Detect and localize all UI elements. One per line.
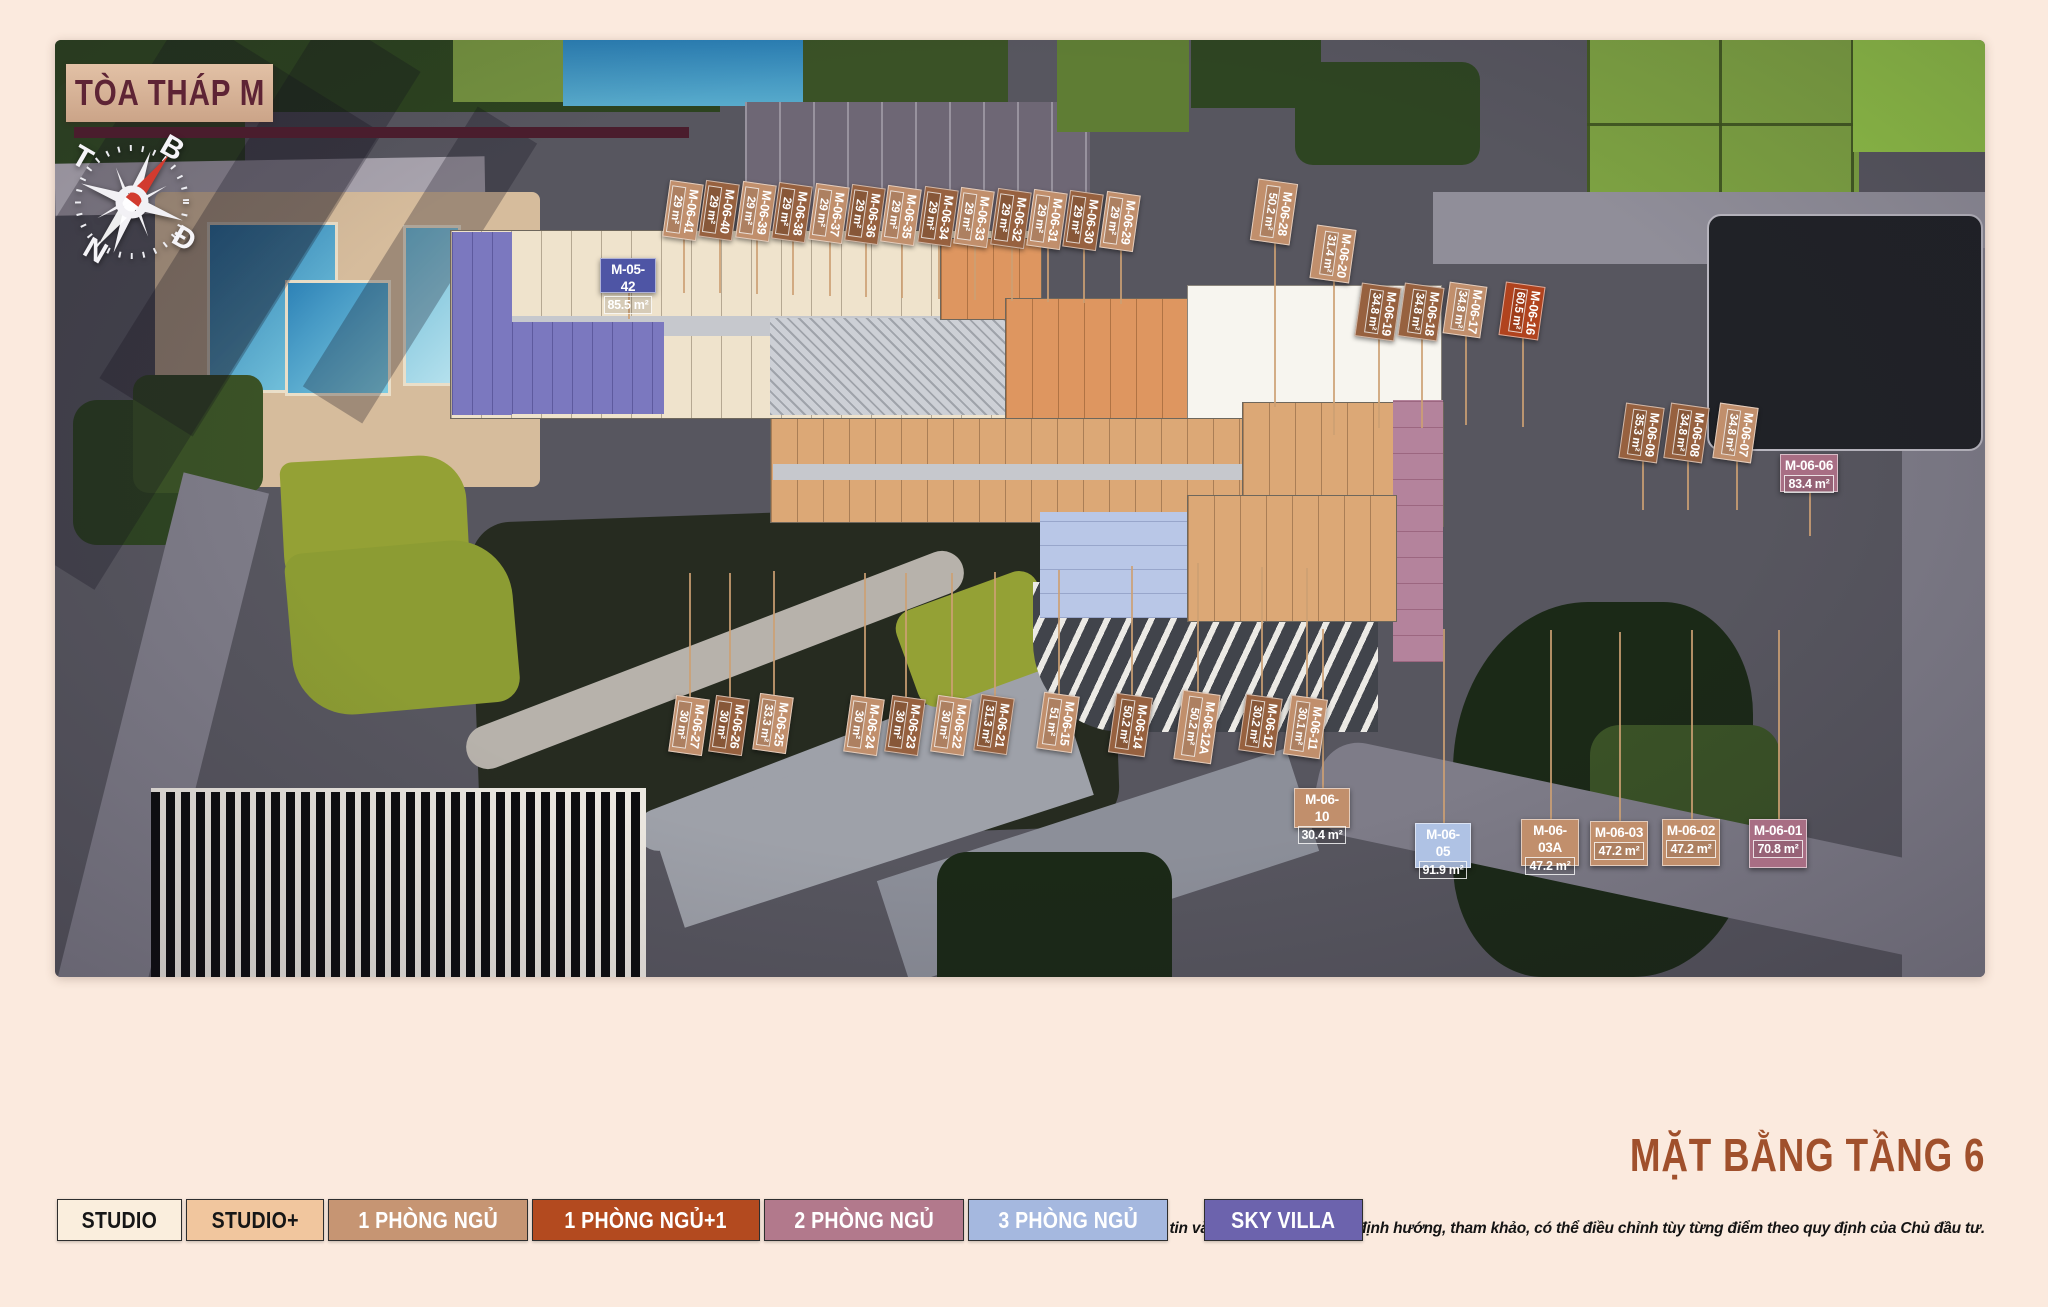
unit-lead-line [1619,632,1621,827]
unit-lead-line [864,573,866,703]
unit-area: 85.5 m² [604,296,652,314]
unit-label-M-06-20: M-06-2031.4 m² [1309,224,1356,283]
compass-rose: B Đ N T [55,112,215,282]
unit-lead-line [905,573,907,703]
unit-area: 47.2 m² [1594,842,1644,860]
unit-area: 70.8 m² [1753,840,1803,858]
legend-item-4: 1 PHÒNG NGỦ+1 [532,1199,759,1241]
site-photo: M-06-4129 m²M-06-4029 m²M-06-3929 m²M-06… [55,40,1985,977]
poster: M-06-4129 m²M-06-4029 m²M-06-3929 m²M-06… [0,0,2048,1307]
unit-lead-line [1809,486,1811,536]
unit-code: M-06-06 [1784,457,1834,474]
unit-label-M-06-19: M-06-1934.8 m² [1354,282,1401,341]
legend-item-label: STUDIO [82,1207,157,1234]
unit-lead-line [729,573,731,703]
compass-north-label: B [155,128,190,167]
unit-lead-line [1691,630,1693,825]
sky-villa-lower [512,322,664,414]
unit-lead-line [901,238,903,298]
unit-lead-line [1642,455,1644,510]
unit-code: M-06-03A [1525,822,1575,856]
unit-lead-line [1306,568,1308,703]
unit-code: M-05-42 [604,261,652,295]
unit-label-M-06-02: M-06-0247.2 m² [1662,819,1720,866]
unit-code: M-06-05 [1419,826,1467,860]
unit-label-M-06-14: M-06-1450.2 m² [1108,693,1153,758]
unit-lead-line [683,233,685,293]
unit-type-legend: STUDIOSTUDIO+1 PHÒNG NGỦ1 PHÒNG NGỦ+12 P… [57,1199,1363,1241]
unit-label-M-06-17: M-06-1734.8 m² [1443,282,1488,339]
unit-area: 30.4 m² [1298,826,1346,844]
trees-right-2 [1295,62,1480,165]
unit-lead-line [1443,629,1445,829]
legend-item-label: STUDIO+ [211,1207,298,1234]
unit-label-M-06-12: M-06-1230.2 m² [1238,694,1283,756]
lawn-bright-tr [1853,40,1985,152]
unit-lead-line [756,234,758,294]
unit-lead-line [1778,630,1780,825]
pool-top [563,40,803,106]
unit-area: 47.2 m² [1525,857,1575,875]
legend-item-label: 2 PHÒNG NGỦ [794,1207,934,1234]
unit-lead-line [951,573,953,703]
units-orange-mid [1005,298,1192,422]
unit-label-M-06-03: M-06-0347.2 m² [1590,821,1648,866]
unit-label-M-06-31: M-06-3129 m² [1026,189,1068,250]
legend-item-7: SKY VILLA [1204,1199,1362,1241]
unit-label-M-06-06: M-06-0683.4 m² [1780,454,1838,492]
unit-label-M-06-10: M-06-1030.4 m² [1294,788,1350,828]
unit-lead-line [1736,455,1738,510]
unit-label-M-06-08: M-06-0834.8 m² [1663,403,1709,464]
unit-lead-line [719,233,721,293]
trees-bottom-c [937,852,1172,977]
unit-lead-line [1047,242,1049,302]
unit-label-M-06-28: M-06-2850.2 m² [1250,179,1298,246]
core-upper [770,318,1038,415]
unit-area: 83.4 m² [1784,475,1834,493]
compass-west-label: T [66,139,98,177]
unit-lead-line [974,240,976,300]
unit-lead-line [829,236,831,296]
legend-item-label: 1 PHÒNG NGỦ+1 [565,1207,727,1234]
legend-item-label: SKY VILLA [1231,1207,1335,1234]
unit-lead-line [1421,333,1423,428]
unit-lead-line [1550,630,1552,825]
unit-code: M-06-03 [1594,824,1644,841]
unit-code: M-06-02 [1666,822,1716,839]
units-tan-bottom [1187,495,1397,622]
unit-lead-line [1687,455,1689,510]
unit-code: M-06-01 [1753,822,1803,839]
unit-lead-line [938,239,940,299]
lawn-right-1 [1057,40,1189,132]
unit-area: 91.9 m² [1419,861,1467,879]
pergola [151,788,646,977]
unit-lead-line [1083,243,1085,303]
units-mauve-col [1393,400,1443,662]
unit-label-M-06-16: M-06-1660.5 m² [1498,281,1545,340]
unit-area: 47.2 m² [1666,840,1716,858]
unit-label-M-06-05: M-06-0591.9 m² [1415,823,1471,868]
unit-label-M-06-07: M-06-0734.8 m² [1712,403,1758,464]
compass-east-label: Đ [166,219,201,258]
olive-center [283,536,522,720]
corridor-lower [773,464,1242,480]
compass-south-label: N [78,231,113,270]
unit-lead-line [1197,563,1199,698]
unit-label-M-06-18: M-06-1834.8 m² [1397,282,1444,341]
sky-villa-block [452,232,512,415]
legend-item-6: 3 PHÒNG NGỦ [968,1199,1168,1241]
legend-item-5: 2 PHÒNG NGỦ [764,1199,964,1241]
unit-label-M-06-01: M-06-0170.8 m² [1749,819,1807,868]
unit-lead-line [1261,567,1263,702]
unit-lead-line [1131,566,1133,701]
tower-title: TÒA THÁP M [74,72,264,114]
unit-lead-line [1522,332,1524,427]
units-blue [1040,512,1188,618]
unit-label-M-06-03A: M-06-03A47.2 m² [1521,819,1579,866]
legend-item-label: 1 PHÒNG NGỦ [358,1207,498,1234]
unit-label-M-06-29: M-06-2929 m² [1099,191,1141,252]
unit-label-M-06-30: M-06-3029 m² [1062,190,1104,251]
unit-lead-line [792,235,794,295]
unit-lead-line [1274,237,1276,407]
unit-label-M-06-09: M-06-0935.3 m² [1618,403,1664,464]
legend-item-2: STUDIO+ [186,1199,324,1241]
unit-lead-line [994,572,996,702]
legend-item-3: 1 PHÒNG NGỦ [328,1199,528,1241]
grid-lawn [1587,40,1859,212]
unit-lead-line [865,237,867,297]
unit-label-M-05-42: M-05-4285.5 m² [600,258,656,293]
unit-lead-line [773,571,775,701]
unit-lead-line [1058,570,1060,700]
unit-lead-line [1120,244,1122,304]
legend-item-label: 3 PHÒNG NGỦ [998,1207,1138,1234]
unit-code: M-06-10 [1298,791,1346,825]
legend-item-1: STUDIO [57,1199,182,1241]
unit-lead-line [689,573,691,703]
unit-label-M-06-12A: M-06-12A50.2 m² [1173,690,1220,765]
unit-lead-line [1378,333,1380,428]
unit-lead-line [1465,330,1467,425]
unit-lead-line [1333,275,1335,435]
unit-lead-line [1011,241,1013,301]
floor-title: MẶT BẰNG TẦNG 6 [1630,1128,1985,1182]
